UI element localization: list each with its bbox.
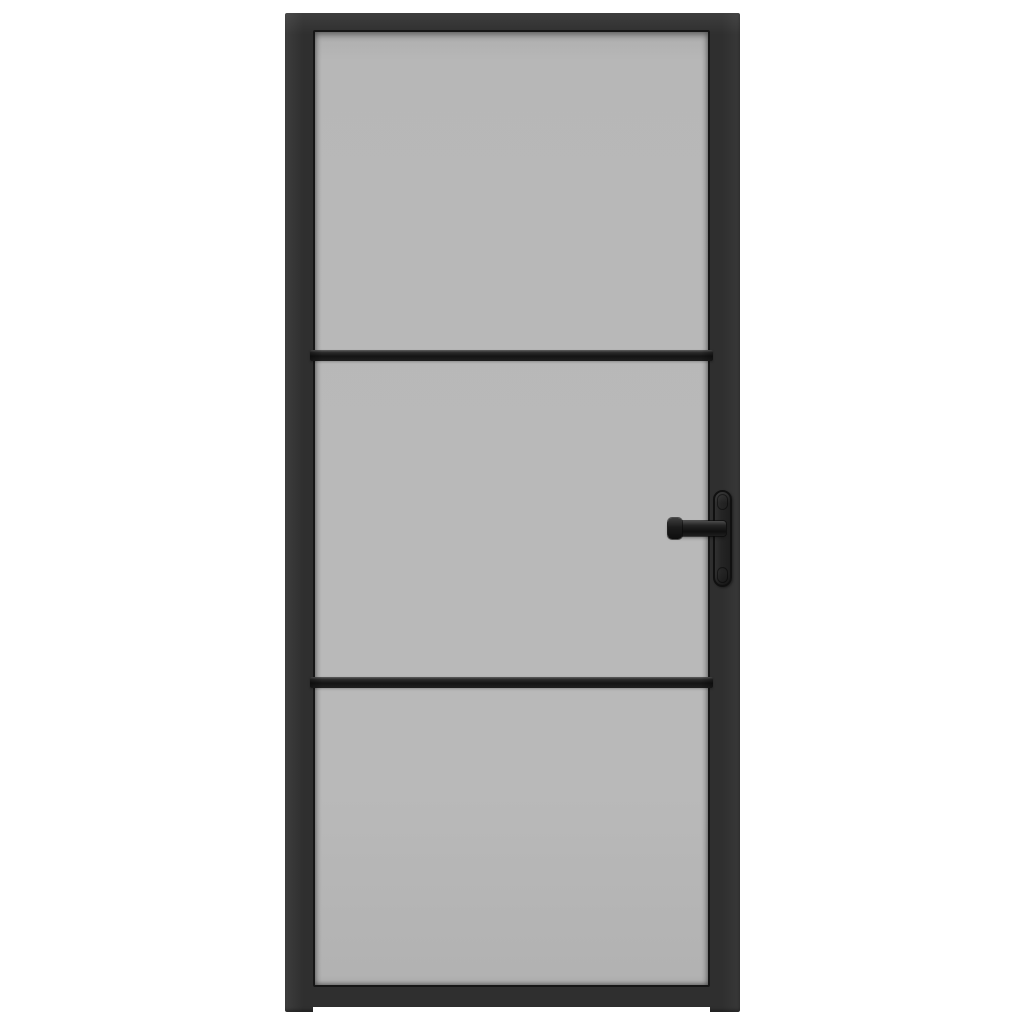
product-photo	[0, 0, 1024, 1024]
divider-bar-upper	[310, 350, 713, 361]
glass-area	[313, 30, 710, 987]
bottom-rail-recess	[313, 1007, 710, 1012]
frosted-glass	[313, 30, 710, 987]
divider-bar-lower	[310, 677, 713, 688]
interior-glass-door	[285, 13, 740, 1012]
